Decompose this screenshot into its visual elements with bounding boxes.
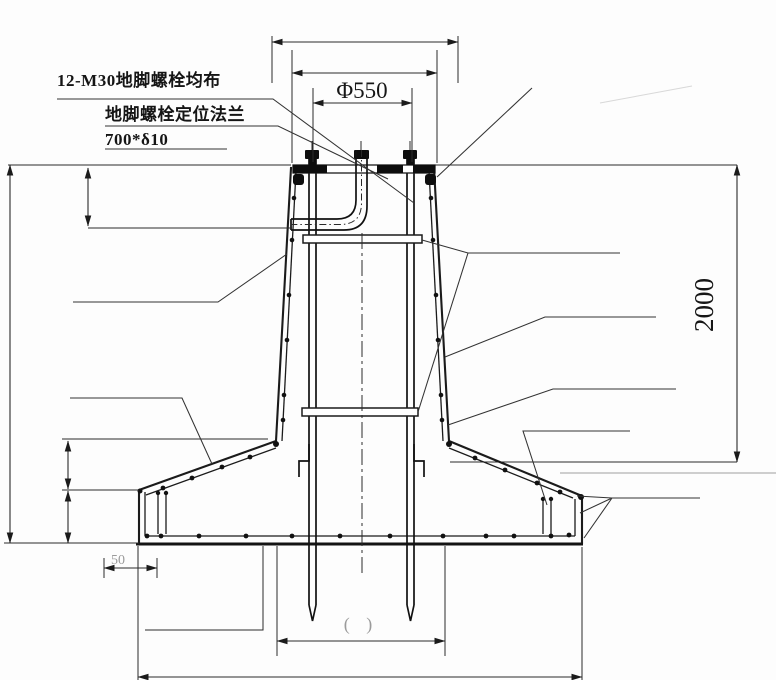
left-bolt-foot [299, 444, 309, 477]
left-upper-leader [73, 254, 287, 302]
blank-dimension: ( ) [344, 614, 379, 635]
erased-grade-line [600, 86, 692, 103]
left-leveling-nut [293, 174, 304, 185]
leader-upper-plate [422, 240, 620, 253]
anchor-bolt-label: 12-M30地脚螺栓均布 [57, 70, 221, 90]
bolt-circle-dimension: Φ550 [336, 78, 387, 103]
pedestal-and-footing-outline [136, 168, 583, 544]
lower-positioning-plate [302, 408, 418, 416]
edge-offset-dimension: 50 [111, 553, 125, 568]
left-stud-nut [305, 150, 319, 159]
right-leveling-nut [425, 174, 436, 185]
leader-pedestal-rebar [445, 317, 656, 357]
leader-pedestal-edge [448, 389, 676, 425]
left-dimensions: 50 [4, 165, 292, 578]
right-depth-dimension: 2000 [689, 165, 737, 462]
right-stud-nut [403, 150, 417, 159]
left-lower-leader [70, 398, 212, 464]
drawing-canvas: Φ550 50 ( ) 2000 12-M30地脚螺栓均布 地脚螺栓定位法兰 7… [0, 0, 776, 680]
labels-and-leaders: 12-M30地脚螺栓均布 地脚螺栓定位法兰 700*δ10 [57, 70, 532, 464]
right-bolt-foot [414, 444, 424, 477]
embedment-depth-dimension: 2000 [689, 278, 719, 332]
left-stirrup [158, 493, 166, 534]
grounding-conduit-pipe [289, 150, 367, 230]
leader-footing-corner [577, 496, 700, 538]
bottom-dimensions: ( ) [138, 546, 582, 680]
top-right-leader [437, 88, 532, 177]
foundation-section-drawing: Φ550 50 ( ) 2000 12-M30地脚螺栓均布 地脚螺栓定位法兰 7… [0, 0, 776, 680]
leader-lower-plate [418, 253, 468, 412]
flange-spec-label: 700*δ10 [105, 130, 168, 149]
rebar-section-dots [138, 196, 585, 539]
positioning-flange-label: 地脚螺栓定位法兰 [105, 104, 245, 124]
top-dimensions: Φ550 [272, 36, 458, 163]
pit-step-line [145, 546, 263, 630]
